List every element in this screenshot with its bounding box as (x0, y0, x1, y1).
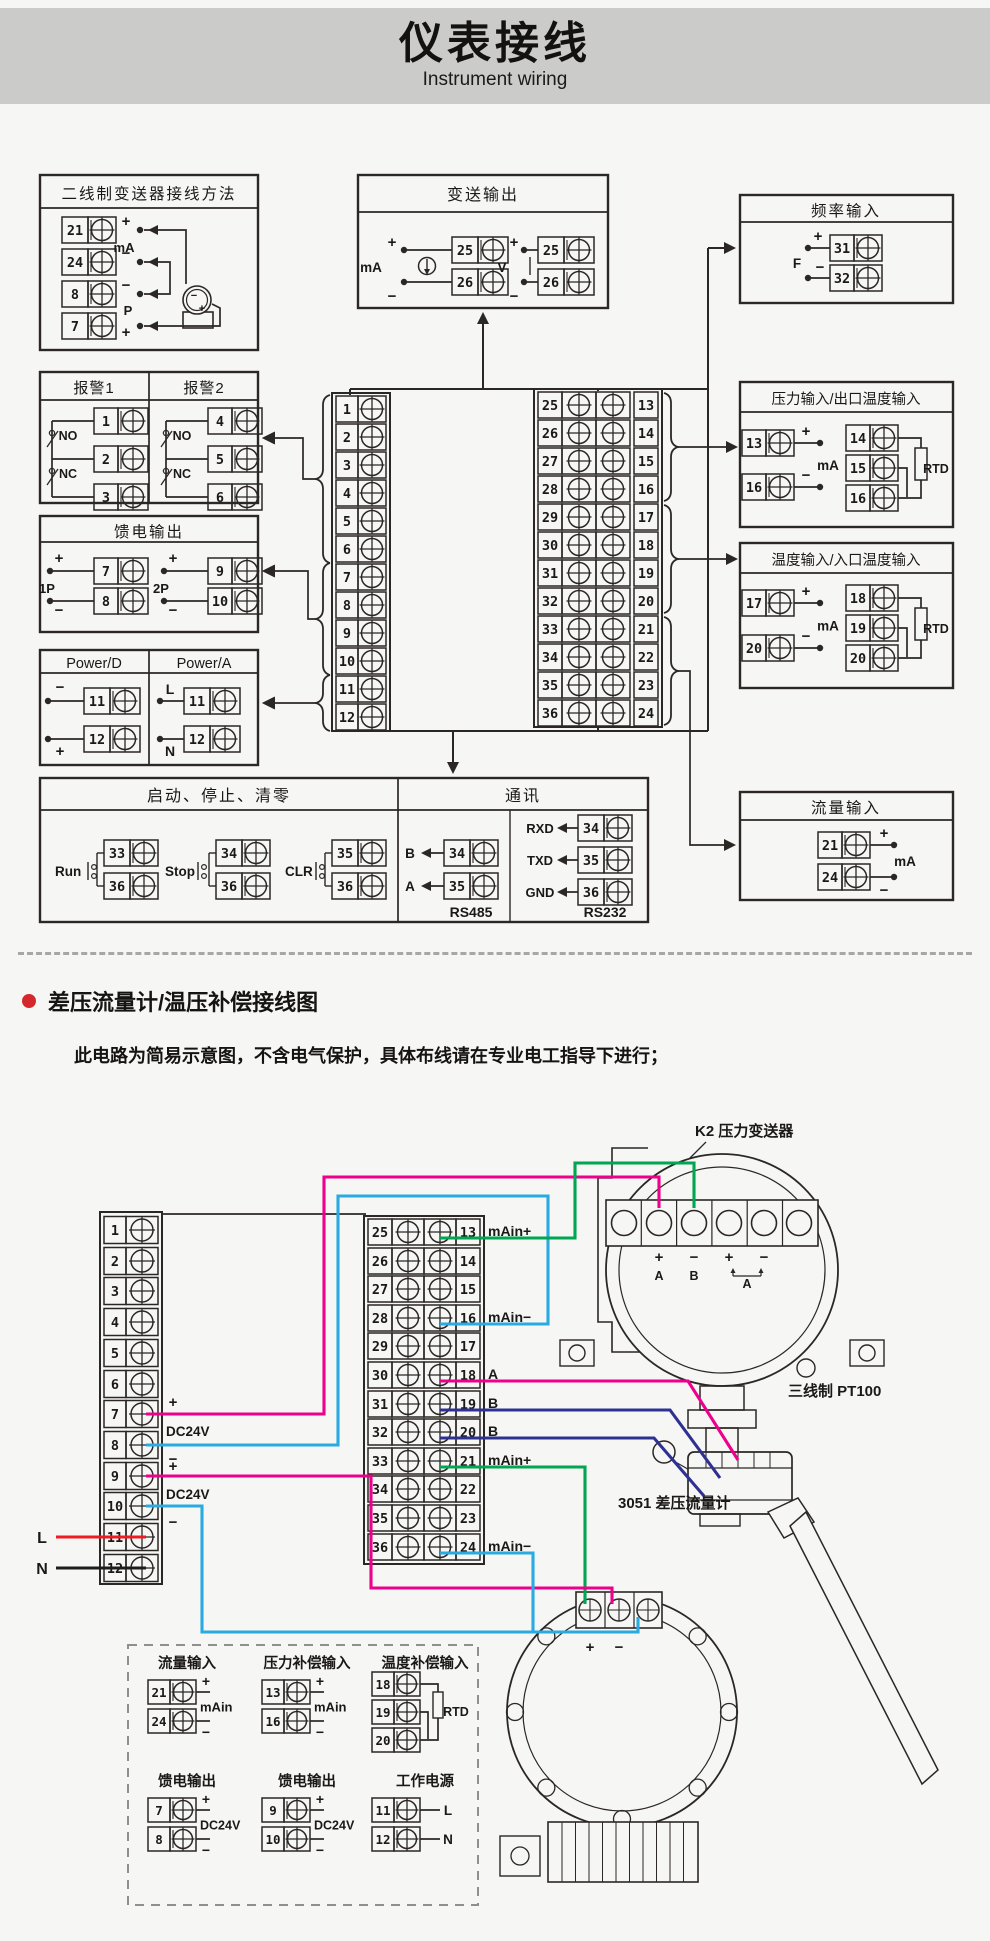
terminal-number: 10 (265, 1832, 280, 1847)
label: − (880, 882, 889, 899)
screw-terminal-icon (596, 420, 630, 446)
terminal-number: 4 (111, 1315, 119, 1331)
terminal-number: 7 (111, 1407, 119, 1423)
box-flow-input: 流量输入2124+−mA (740, 792, 953, 900)
screw-terminal-icon (358, 508, 386, 534)
legend-box: 流量输入压力补偿输入温度补偿输入馈电输出馈电输出工作电源2124+−mAin13… (128, 1645, 478, 1905)
terminal: 18 (634, 532, 658, 558)
terminal: 36 (538, 700, 562, 726)
screw-terminal-icon (562, 588, 596, 614)
screw-terminal-icon (284, 1827, 310, 1851)
terminal: 14 (846, 425, 870, 451)
terminal-number: 18 (375, 1677, 390, 1692)
label: − (202, 1842, 210, 1858)
terminal-number: 28 (542, 482, 558, 498)
terminal: 9 (208, 558, 232, 584)
screw-terminal-icon (110, 726, 140, 752)
box-title: 温度输入/入口温度输入 (771, 552, 920, 569)
label: RTD (923, 462, 949, 476)
terminal-number: 35 (449, 879, 465, 895)
terminal-number: 31 (834, 241, 850, 257)
brace (664, 505, 678, 613)
arrowhead-icon (557, 855, 567, 865)
label: − (760, 1249, 769, 1266)
label: + (388, 234, 397, 251)
terminal-number: 18 (850, 591, 866, 607)
screw-terminal-icon (596, 532, 630, 558)
terminal-number: 6 (343, 542, 351, 558)
terminal-number: 31 (542, 566, 558, 582)
screw-terminal-icon (358, 873, 386, 899)
terminal: 33 (104, 840, 130, 866)
brace (316, 395, 330, 563)
box-frequency-input: 频率输入+−F3132 (740, 195, 953, 303)
label: B (689, 1269, 698, 1283)
screw-terminal-icon (596, 644, 630, 670)
label: + (199, 303, 205, 315)
terminal-number: 24 (151, 1714, 166, 1729)
terminal: 20 (634, 588, 658, 614)
label: + (814, 228, 823, 245)
screw-terminal-icon (562, 560, 596, 586)
center-terminal-strip: 2513261427152816291730183119322033213422… (364, 1216, 531, 1564)
terminal: 31 (538, 560, 562, 586)
terminal-number: 12 (339, 710, 355, 726)
terminal-number: 9 (269, 1803, 277, 1818)
terminal-number: 21 (822, 838, 838, 854)
terminal-number: 16 (265, 1714, 280, 1729)
box-temp-input: 温度输入/入口温度输入1720+−mA181920RTD (740, 543, 953, 688)
screw-terminal-icon (130, 873, 158, 899)
terminal-number: 27 (372, 1282, 388, 1298)
screw-terminal-icon (470, 873, 498, 899)
device-label: K2 压力变送器 (695, 1122, 794, 1140)
label: NC (59, 467, 77, 481)
screw-terminal-icon (118, 558, 148, 584)
screw-terminal-icon (358, 592, 386, 618)
terminal: 35 (538, 672, 562, 698)
screw-terminal-icon (394, 1700, 420, 1724)
legend-title: 流量输入 (158, 1654, 216, 1672)
compensation-wiring-diagram: K2 压力变送器+−+−ABA三线制 PT1003051 差压流量计+−1234… (0, 1096, 990, 1941)
arrowhead-icon (477, 312, 489, 324)
terminal: 19 (372, 1700, 394, 1724)
dp-flowmeter-3051: 3051 差压流量计+− (500, 1494, 738, 1882)
terminal-number: 20 (638, 594, 654, 610)
terminal: 35 (578, 847, 604, 873)
terminal: 19 (634, 560, 658, 586)
screw-terminal-icon (394, 1827, 420, 1851)
screw-terminal-icon (766, 474, 794, 500)
terminal-number: 8 (343, 598, 351, 614)
section-title: 差压流量计/温压补偿接线图 (48, 985, 318, 1017)
terminal-number: 34 (449, 846, 465, 862)
terminal-number: 17 (460, 1339, 476, 1355)
screw-terminal-icon (870, 455, 898, 481)
box-transmit-output: 变送输出+mA−2526+V−2526 (358, 175, 608, 308)
terminal-number: 8 (102, 594, 110, 610)
terminal: 8 (94, 588, 118, 614)
terminal-number: 19 (638, 566, 654, 582)
terminal-number: 34 (542, 650, 558, 666)
screw-terminal-icon (562, 420, 596, 446)
terminal: 30 (538, 532, 562, 558)
terminal-number: 11 (339, 682, 355, 698)
terminal-number: 26 (457, 275, 473, 291)
label: − (816, 259, 825, 276)
label: − (510, 288, 519, 305)
label: + (122, 213, 131, 230)
terminal-number: 13 (265, 1685, 280, 1700)
label: A (405, 879, 415, 894)
screw-terminal-icon (284, 1709, 310, 1733)
brace (316, 675, 330, 731)
screw-terminal-icon (88, 217, 116, 243)
legend-title: 馈电输出 (158, 1772, 216, 1790)
terminal: 18 (846, 585, 870, 611)
screw-terminal-icon (596, 560, 630, 586)
label: A (654, 1269, 663, 1283)
screw-terminal-icon (766, 635, 794, 661)
box-title: 变送输出 (447, 186, 519, 204)
legend-title: 工作电源 (396, 1772, 454, 1790)
terminal-number: 36 (337, 879, 353, 895)
terminal: 24 (818, 864, 842, 890)
screw-terminal-icon (854, 235, 882, 261)
screw-terminal-icon (562, 672, 596, 698)
label: DC24V (166, 1487, 210, 1502)
label: L (37, 1530, 47, 1547)
terminal-number: 35 (583, 853, 599, 869)
label: Run (55, 864, 81, 879)
terminal-number: 26 (372, 1254, 388, 1270)
terminal: 11 (84, 688, 110, 714)
terminal-number: 17 (638, 510, 654, 526)
label: L (444, 1803, 452, 1818)
screw-terminal-icon (596, 392, 630, 418)
arrowhead-icon (421, 848, 431, 858)
page-header: 仪表接线 Instrument wiring (0, 8, 990, 104)
label: + (169, 1394, 178, 1411)
label: mAin (314, 1700, 347, 1715)
label: N (36, 1561, 48, 1578)
terminal-number: 20 (850, 651, 866, 667)
terminal: 12 (372, 1827, 394, 1851)
terminal-number: 15 (638, 454, 654, 470)
terminal-number: 7 (343, 570, 351, 586)
terminal-number: 36 (542, 706, 558, 722)
label: − (169, 1514, 178, 1531)
label: RS485 (450, 904, 493, 920)
terminal-number: 35 (372, 1511, 388, 1527)
box-title: 报警2 (183, 380, 224, 397)
terminal: 26 (452, 269, 478, 295)
label: + (880, 825, 889, 842)
terminal-number: 22 (638, 650, 654, 666)
box-two-wire-transmitter: 二线制变送器接线方法212487+mA−−P+−+ (40, 175, 258, 350)
terminal-number: 21 (638, 622, 654, 638)
brace (664, 617, 678, 725)
terminal-number: 3 (111, 1284, 119, 1300)
dashed-divider (18, 952, 972, 955)
terminal-number: 9 (216, 564, 224, 580)
terminal-number: 36 (372, 1540, 388, 1556)
terminal-number: 19 (850, 621, 866, 637)
terminal-number: 27 (542, 454, 558, 470)
terminal-number: 6 (216, 490, 224, 506)
terminal-number: 20 (375, 1733, 390, 1748)
legend-title: 馈电输出 (278, 1772, 336, 1790)
terminal: 25 (538, 237, 564, 263)
terminal-number: 4 (216, 414, 224, 430)
label: + (55, 550, 64, 567)
label: NO (173, 429, 192, 443)
screw-terminal-icon (242, 873, 270, 899)
terminal-number: 11 (375, 1803, 390, 1818)
terminal: 7 (94, 558, 118, 584)
terminal-number: 9 (343, 626, 351, 642)
label: + (169, 1458, 178, 1475)
label: mAin (200, 1700, 233, 1715)
terminal: 3 (336, 452, 358, 478)
terminal: 18 (372, 1672, 394, 1696)
label: N (165, 743, 175, 759)
label: − (802, 628, 811, 645)
box-title: 报警1 (73, 380, 114, 397)
screw-terminal-icon (562, 448, 596, 474)
terminal-number: 33 (109, 846, 125, 862)
label: mA (817, 458, 839, 473)
terminal-number: 9 (111, 1469, 119, 1485)
screw-terminal-icon (870, 645, 898, 671)
terminal: 13 (262, 1680, 284, 1704)
terminal: 34 (216, 840, 242, 866)
terminal: 25 (452, 237, 478, 263)
screw-terminal-icon (118, 446, 148, 472)
arrowhead-icon (262, 432, 274, 444)
terminal: 10 (208, 588, 232, 614)
box-title: 启动、停止、清零 (147, 787, 291, 805)
terminal-number: 10 (212, 594, 228, 610)
screw-terminal-icon (766, 430, 794, 456)
arrowhead-icon (557, 887, 567, 897)
terminal-number: 23 (638, 678, 654, 694)
arrowhead-icon (148, 225, 158, 235)
arrowhead-icon (148, 289, 158, 299)
terminal: 24 (634, 700, 658, 726)
label: + (169, 550, 178, 567)
screw-terminal-icon (564, 269, 594, 295)
main-terminal-strip-left: 123456789101112 (332, 393, 390, 731)
terminal: 21 (62, 217, 88, 243)
terminal: 22 (634, 644, 658, 670)
terminal: 8 (62, 281, 88, 307)
terminal: 15 (846, 455, 870, 481)
label: NC (173, 467, 191, 481)
terminal-number: 1 (102, 414, 110, 430)
terminal-number: 1 (343, 402, 351, 418)
terminal: 10 (262, 1827, 284, 1851)
terminal-number: 14 (460, 1254, 476, 1270)
arrowhead-icon (724, 839, 736, 851)
box-title: 馈电输出 (114, 523, 184, 541)
screw-terminal-icon (242, 840, 270, 866)
label: − (802, 467, 811, 484)
terminal: 26 (538, 269, 564, 295)
terminal: 15 (634, 448, 658, 474)
terminal: 12 (336, 704, 358, 730)
screw-terminal-icon (596, 616, 630, 642)
arrowhead-icon (557, 823, 567, 833)
screw-terminal-icon (604, 815, 632, 841)
screw-terminal-icon (88, 249, 116, 275)
screw-terminal-icon (358, 396, 386, 422)
terminal-number: 32 (542, 594, 558, 610)
terminal-number: 35 (337, 846, 353, 862)
label: Stop (165, 864, 195, 879)
terminal: 20 (742, 635, 766, 661)
label: − (316, 1724, 324, 1740)
screw-terminal-icon (358, 676, 386, 702)
terminal-number: 16 (746, 480, 762, 496)
screw-terminal-icon (394, 1672, 420, 1696)
terminal-number: 32 (372, 1425, 388, 1441)
terminal-number: 34 (583, 821, 599, 837)
label: A (742, 1277, 751, 1291)
box-run-stop-comm: 启动、停止、清零通讯Run3336Stop3436CLR3536B34A35RS… (40, 778, 648, 922)
box-feed-output: 馈电输出78+−1P910+−2P (39, 516, 275, 632)
label: + (802, 423, 811, 440)
label: DC24V (166, 1424, 210, 1439)
terminal: 36 (216, 873, 242, 899)
device-label: 三线制 PT100 (788, 1382, 881, 1400)
screw-terminal-icon (604, 847, 632, 873)
screw-terminal-icon (394, 1798, 420, 1822)
box-title: 压力输入/出口温度输入 (771, 391, 920, 408)
label: RTD (443, 1705, 469, 1719)
screw-terminal-icon (470, 840, 498, 866)
label: TXD (527, 853, 553, 868)
terminal: 2 (336, 424, 358, 450)
box-title: Power/D (66, 656, 122, 672)
legend-title: 温度补偿输入 (382, 1654, 469, 1672)
terminal: 7 (62, 313, 88, 339)
screw-terminal-icon (562, 392, 596, 418)
arrowhead-icon (262, 565, 274, 577)
terminal: 24 (148, 1709, 170, 1733)
screw-terminal-icon (596, 504, 630, 530)
terminal: 9 (336, 620, 358, 646)
terminal-number: 35 (542, 678, 558, 694)
terminal: 7 (148, 1798, 170, 1822)
label: + (202, 1791, 210, 1807)
arrowhead-icon (447, 762, 459, 774)
label: P (124, 303, 133, 318)
terminal: 11 (372, 1798, 394, 1822)
screw-terminal-icon (842, 832, 870, 858)
section-heading: 差压流量计/温压补偿接线图 (22, 985, 318, 1017)
screw-terminal-icon (170, 1798, 196, 1822)
screw-terminal-icon (358, 452, 386, 478)
connection-lines (262, 242, 738, 851)
terminal: 32 (830, 265, 854, 291)
terminal: 6 (336, 536, 358, 562)
terminal-number: 28 (372, 1311, 388, 1327)
terminal: 24 (62, 249, 88, 275)
screw-terminal-icon (394, 1728, 420, 1752)
label: 2P (153, 581, 169, 596)
terminal: 21 (148, 1680, 170, 1704)
terminal-number: 16 (850, 491, 866, 507)
screw-terminal-icon (358, 536, 386, 562)
label: − (122, 245, 131, 262)
terminal: 28 (538, 476, 562, 502)
screw-terminal-icon (88, 313, 116, 339)
screw-terminal-icon (596, 448, 630, 474)
label: GND (526, 885, 555, 900)
terminal-number: 4 (343, 486, 351, 502)
terminal-number: 29 (542, 510, 558, 526)
label: − (191, 290, 197, 302)
screw-terminal-icon (596, 588, 630, 614)
label: − (56, 679, 65, 696)
terminal-number: 1 (111, 1223, 119, 1239)
section-note: 此电路为简易示意图，不含电气保护，具体布线请在专业电工指导下进行； (74, 1042, 668, 1068)
screw-terminal-icon (358, 620, 386, 646)
box-title: 频率输入 (811, 202, 881, 220)
terminal: 34 (444, 840, 470, 866)
screw-terminal-icon (358, 424, 386, 450)
terminal: 4 (336, 480, 358, 506)
terminal: 21 (818, 832, 842, 858)
box-title: 流量输入 (811, 799, 881, 817)
arrowhead-icon (421, 881, 431, 891)
screw-terminal-icon (170, 1827, 196, 1851)
terminal-number: 13 (638, 398, 654, 414)
screw-terminal-icon (110, 688, 140, 714)
terminal-number: 25 (542, 398, 558, 414)
screw-terminal-icon (562, 504, 596, 530)
terminal-number: 24 (638, 706, 654, 722)
terminal: 8 (148, 1827, 170, 1851)
box-title: 通讯 (505, 787, 541, 805)
terminal-number: 36 (221, 879, 237, 895)
terminal: 9 (262, 1798, 284, 1822)
terminal-number: 33 (372, 1454, 388, 1470)
terminal-number: 33 (542, 622, 558, 638)
terminal-number: 8 (71, 287, 79, 303)
label: + (510, 234, 519, 251)
label: + (725, 1249, 734, 1266)
terminal: 31 (830, 235, 854, 261)
terminal: 7 (336, 564, 358, 590)
screw-terminal-icon (118, 408, 148, 434)
screw-terminal-icon (596, 700, 630, 726)
label: − (122, 277, 131, 294)
terminal: 16 (262, 1709, 284, 1733)
screw-terminal-icon (562, 616, 596, 642)
terminal-number: 25 (372, 1225, 388, 1241)
screw-terminal-icon (170, 1680, 196, 1704)
terminal-number: 14 (850, 431, 866, 447)
terminal: 14 (634, 420, 658, 446)
terminal-number: 30 (542, 538, 558, 554)
terminal-number: 8 (155, 1832, 163, 1847)
screw-terminal-icon (358, 480, 386, 506)
label: − (316, 1842, 324, 1858)
arrowhead-icon (148, 257, 158, 267)
terminal-number: 7 (102, 564, 110, 580)
